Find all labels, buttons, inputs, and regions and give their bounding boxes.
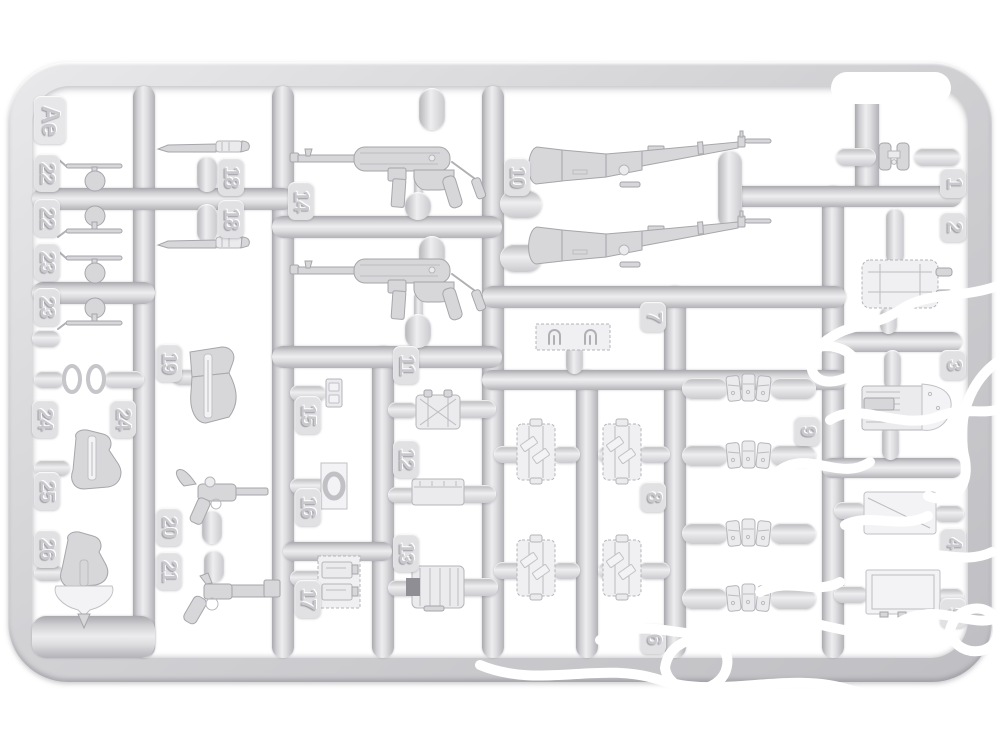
part-tag-5: 5 [940, 598, 966, 628]
gate-mp40-top-1 [419, 88, 445, 130]
gate-mp40-bulb-1 [405, 192, 431, 220]
runner-horizontal-left-bottom [32, 616, 155, 658]
gate-p12-l [388, 487, 418, 503]
part-tag-23b: 23 [34, 288, 60, 326]
part-tag-1: 1 [940, 168, 966, 198]
gate-p9-4l [682, 588, 728, 609]
gate-etool-bot [882, 424, 899, 460]
part-tag-21: 21 [156, 552, 182, 590]
part-tag-24b: 24 [110, 400, 136, 438]
part-tag-19: 19 [156, 344, 182, 382]
gate-p8-r1a [494, 446, 526, 463]
gate-p5-l [834, 586, 868, 603]
gate-rifle-2 [500, 244, 542, 272]
gate-p4-r [934, 505, 964, 522]
runner-horizontal-col3-divider [283, 542, 392, 561]
gate-p8-r2b [552, 562, 580, 579]
part-tag-6: 6 [640, 624, 666, 654]
part-tag-3: 3 [940, 350, 966, 380]
gate-p8-r2a [494, 562, 526, 579]
part-tag-20: 20 [156, 508, 182, 546]
part-tag-8: 8 [640, 482, 666, 512]
gate-bino-l [836, 148, 876, 166]
part-tag-16: 16 [295, 488, 321, 526]
part-tag-18b: 18 [218, 200, 244, 238]
gate-p11-r [452, 400, 496, 418]
gate-backpack-top [886, 208, 904, 264]
sprue-letter-tag: Ae [34, 96, 66, 144]
gate-p12-r [456, 485, 496, 503]
runner-vertical-3 [372, 346, 394, 658]
sprue-photo: Ae 22 22 23 23 24 24 25 26 18 18 19 20 2… [0, 0, 1000, 750]
part-tag-11: 11 [393, 346, 419, 384]
gate-etool-top [884, 350, 901, 390]
gate-p13-r [456, 578, 498, 596]
part-tag-9: 9 [794, 416, 820, 446]
part-tag-14: 14 [288, 182, 314, 220]
gate-pistol20 [202, 510, 222, 544]
part-tag-15: 15 [295, 396, 321, 434]
gate-p9-1l [682, 378, 728, 399]
part-tag-22b: 22 [34, 199, 60, 237]
gate-rifle-right [718, 150, 742, 228]
gate-p9-3r [770, 523, 816, 544]
gate-p9-2r [770, 445, 816, 466]
runner-horizontal-mid-2 [272, 346, 502, 368]
part-tag-13: 13 [393, 534, 419, 572]
gate-mp40-bulb-2 [405, 314, 431, 348]
gate-p9-3l [682, 523, 728, 544]
gate-oval-left [34, 371, 64, 388]
gate-p9-4r [770, 588, 816, 609]
gate-p11-l [388, 402, 418, 418]
part-tag-4: 4 [940, 528, 966, 558]
gate-p9-1r [770, 378, 816, 399]
gate-p8-r2c [598, 562, 624, 579]
gate-p8-r1b [552, 446, 580, 463]
runner-vertical-5 [576, 370, 598, 658]
gate-p9-2l [682, 445, 728, 466]
gate-p8-r1c [598, 446, 624, 463]
part-tag-25: 25 [34, 472, 60, 510]
gate-backpack-bot [880, 306, 897, 334]
part-tag-2: 2 [940, 212, 966, 242]
gate-p8-r1d [638, 446, 670, 463]
gate-oval-right [104, 371, 144, 388]
gate-bayonet-2 [197, 204, 217, 242]
runner-horizontal-right-top [730, 186, 962, 207]
gate-bayonet-1 [197, 156, 217, 192]
gate-buckleplate [566, 344, 583, 374]
runner-horizontal-right-3 [822, 458, 962, 478]
gate-mp40-top-2 [419, 236, 445, 270]
part-tag-10: 10 [504, 158, 530, 196]
part-tag-24a: 24 [32, 400, 58, 438]
gate-p13-l [388, 580, 418, 596]
gate-p8-r2d [638, 562, 670, 579]
runner-horizontal-right-2 [822, 332, 962, 352]
part-tag-7: 7 [640, 302, 666, 332]
gate-bino-r [914, 148, 960, 166]
runner-horizontal-left-1 [32, 188, 294, 210]
runner-stub [32, 330, 60, 347]
part-tag-12: 12 [393, 440, 419, 478]
gate-flare21 [204, 550, 224, 582]
gate-p4-l [834, 502, 866, 519]
part-tag-17: 17 [295, 580, 321, 618]
part-tag-18a: 18 [218, 158, 244, 196]
part-tag-22a: 22 [34, 154, 60, 192]
part-tag-26: 26 [34, 530, 60, 568]
part-tag-23a: 23 [34, 243, 60, 281]
